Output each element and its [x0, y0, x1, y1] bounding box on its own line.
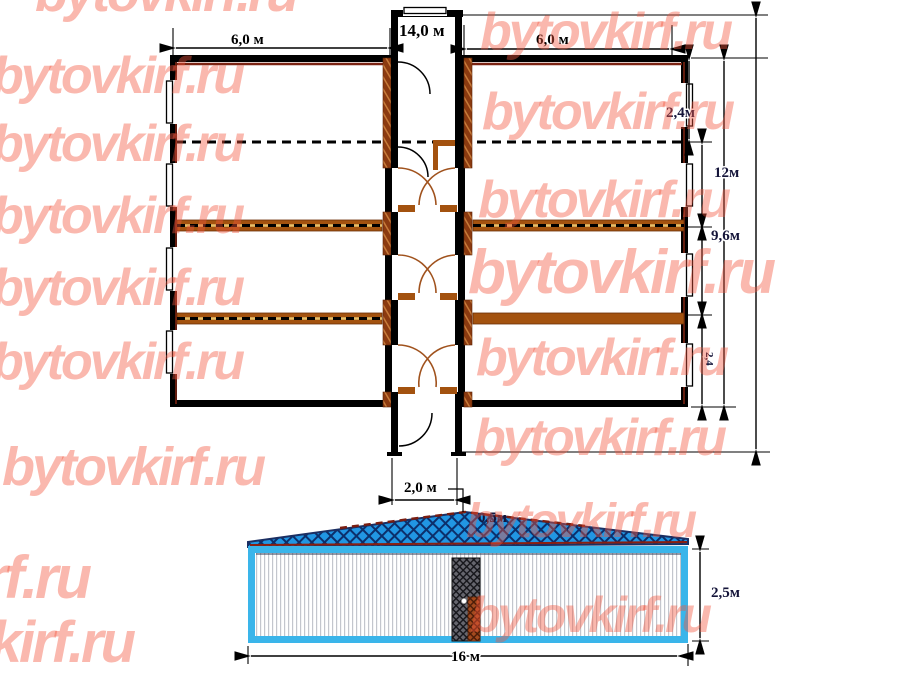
dim-right-wing-width: 6,0 м	[536, 32, 569, 48]
dim-left-wing-width: 6,0 м	[231, 32, 264, 48]
dim-length: 16 м	[451, 649, 480, 665]
dim-wall-height: 2,5м	[711, 585, 740, 601]
door-knob	[461, 598, 466, 603]
dim-rooms-span: 9,6м	[711, 228, 740, 244]
entry-tick-left	[387, 452, 402, 456]
dim-corridor-width: 2,0 м	[404, 480, 437, 496]
dim-first-room-depth: 2,4м	[666, 105, 695, 121]
elevation-door-brown-panel	[468, 597, 480, 641]
floorplan-screenshot: 6,0 м 14,0 м 6,0 м 2,4м 12м 9,6м 2,4 2,0…	[0, 0, 900, 675]
technical-drawing: 6,0 м 14,0 м 6,0 м 2,4м 12м 9,6м 2,4 2,0…	[0, 0, 900, 675]
dim-building-depth: 12м	[714, 165, 739, 181]
tambour-window	[404, 8, 446, 14]
dim-corridor-length: 14,0 м	[399, 21, 445, 40]
entry-tick-right	[451, 452, 466, 456]
elevation-view: 0,5м 2,5м 16 м	[248, 489, 740, 666]
corridor-doors	[398, 140, 457, 394]
plan-view: 6,0 м 14,0 м 6,0 м 2,4м 12м 9,6м 2,4 2,0…	[167, 6, 771, 505]
dim-roof-rise: 0,5м	[478, 510, 507, 526]
door-swing-arcs	[398, 168, 455, 387]
dim-room-depth-side: 2,4	[703, 352, 715, 366]
